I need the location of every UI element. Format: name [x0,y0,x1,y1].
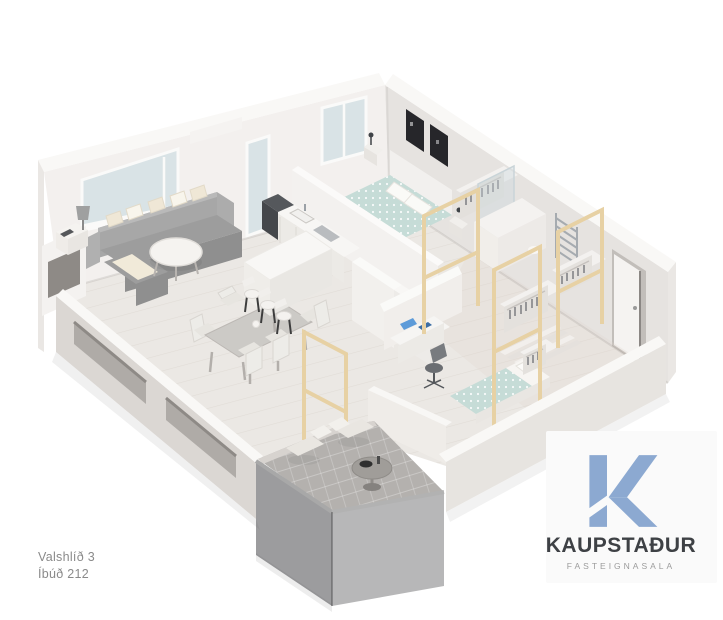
art-detail [436,140,439,144]
table-centerpiece [253,321,260,328]
art-detail [410,122,413,126]
address-line1: Valshlíð 3 [38,550,95,564]
serving-tray [360,461,373,468]
brand-name: KAUPSTAÐUR [546,534,696,557]
brand-logo: KAUPSTAÐUR FASTEIGNASALA [546,431,717,583]
wall-east-end [668,262,676,383]
floor-plan-render: Valshlíð 3 Íbúð 212 KAUPSTAÐUR FASTEIGNA… [0,0,723,620]
address-label: Valshlíð 3 Íbúð 212 [38,550,95,581]
table-lamp [76,206,90,220]
bottle [377,456,380,464]
floor-plan-page: Valshlíð 3 Íbúð 212 KAUPSTAÐUR FASTEIGNA… [0,0,723,620]
table-lamp-icon [369,133,374,138]
brand-tagline: FASTEIGNASALA [567,561,675,571]
door-handle [633,306,637,310]
address-line2: Íbúð 212 [38,566,89,581]
